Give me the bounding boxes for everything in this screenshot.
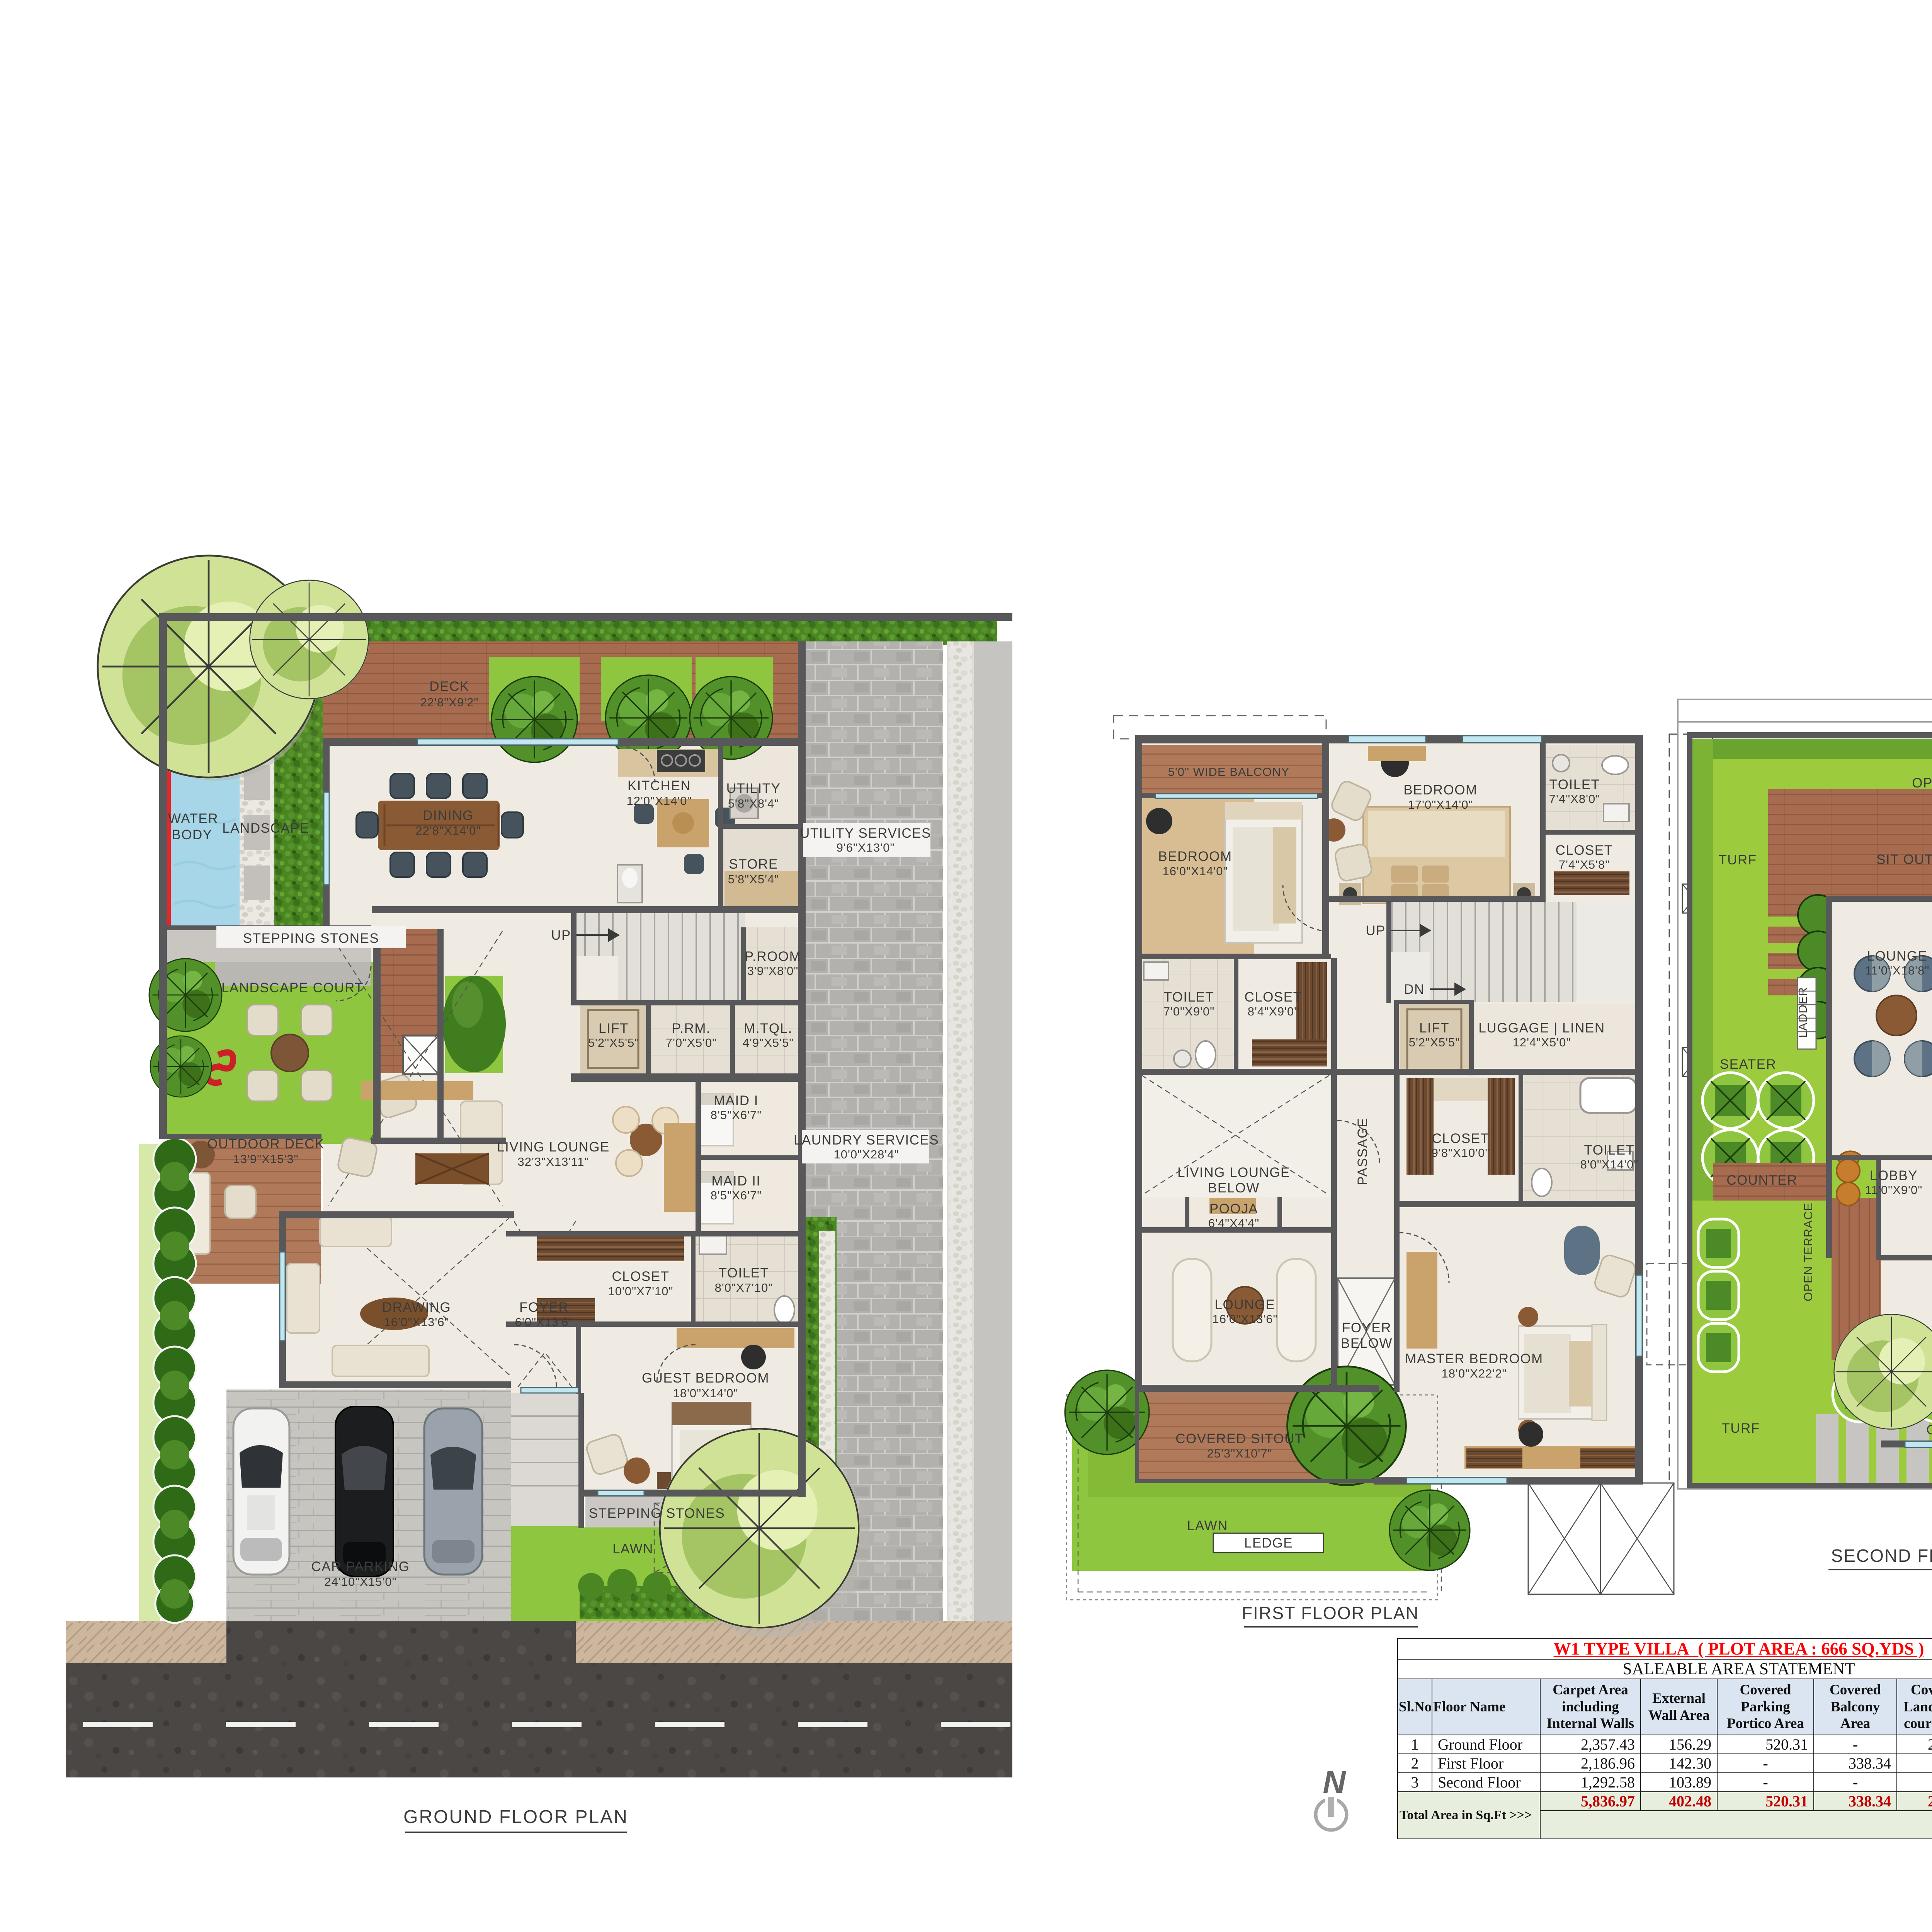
- svg-text:PASSAGE: PASSAGE: [1355, 1117, 1370, 1185]
- svg-text:P.ROOM: P.ROOM: [745, 949, 801, 964]
- svg-text:DINING: DINING: [423, 808, 474, 823]
- svg-text:LANDSCAPE: LANDSCAPE: [222, 821, 310, 836]
- svg-text:8'4"X9'0": 8'4"X9'0": [1248, 1005, 1299, 1018]
- svg-text:STORE: STORE: [729, 857, 778, 872]
- svg-text:CLOSET: CLOSET: [1555, 843, 1613, 858]
- svg-text:LAUNDRY SERVICES: LAUNDRY SERVICES: [794, 1133, 939, 1148]
- svg-text:CAR PARKING: CAR PARKING: [311, 1559, 410, 1574]
- svg-text:17'0"X14'0": 17'0"X14'0": [1408, 798, 1473, 811]
- svg-text:10'0"X28'4": 10'0"X28'4": [834, 1148, 899, 1161]
- svg-text:UTILITY: UTILITY: [726, 781, 781, 796]
- svg-text:MAID II: MAID II: [711, 1173, 760, 1189]
- svg-text:POOJA: POOJA: [1209, 1201, 1258, 1216]
- svg-text:UP: UP: [1366, 923, 1386, 938]
- svg-text:8'0"X14'0": 8'0"X14'0": [1580, 1158, 1639, 1171]
- svg-text:SEATER: SEATER: [1720, 1057, 1776, 1072]
- svg-text:TOILET: TOILET: [1549, 777, 1600, 792]
- svg-text:DRAWING: DRAWING: [382, 1300, 451, 1315]
- svg-text:LIFT: LIFT: [1419, 1020, 1449, 1036]
- svg-text:M.TQL.: M.TQL.: [744, 1021, 793, 1036]
- svg-text:LANDSCAPE COURT: LANDSCAPE COURT: [221, 980, 364, 995]
- svg-text:CLOSET: CLOSET: [1432, 1131, 1489, 1146]
- svg-text:9'6"X13'0": 9'6"X13'0": [837, 841, 895, 854]
- svg-text:LADDER: LADDER: [1796, 987, 1810, 1038]
- svg-text:16'0"X14'0": 16'0"X14'0": [1163, 864, 1228, 878]
- svg-text:CLOSET: CLOSET: [612, 1269, 669, 1284]
- svg-text:11'0"X9'0": 11'0"X9'0": [1865, 1183, 1922, 1197]
- svg-text:WATER: WATER: [168, 811, 218, 826]
- svg-text:BELOW: BELOW: [1208, 1180, 1260, 1196]
- svg-text:11'0"X18'8": 11'0"X18'8": [1865, 964, 1930, 977]
- svg-text:OUTDOOR DECK: OUTDOOR DECK: [207, 1136, 325, 1151]
- svg-text:LIVING LOUNGE: LIVING LOUNGE: [497, 1139, 610, 1155]
- svg-text:8'5"X6'7": 8'5"X6'7": [711, 1189, 762, 1202]
- svg-text:4'9"X5'5": 4'9"X5'5": [743, 1036, 794, 1049]
- svg-text:TOILET: TOILET: [719, 1265, 769, 1281]
- svg-text:GROUND FLOOR PLAN: GROUND FLOOR PLAN: [403, 1807, 628, 1827]
- svg-text:OPEN TERRACE: OPEN TERRACE: [1801, 1202, 1815, 1301]
- svg-text:5'0" WIDE BALCONY: 5'0" WIDE BALCONY: [1168, 765, 1290, 779]
- svg-text:BEDROOM: BEDROOM: [1158, 849, 1232, 864]
- svg-text:12'4"X5'0": 12'4"X5'0": [1513, 1036, 1571, 1049]
- svg-text:16'0"X13'6": 16'0"X13'6": [384, 1315, 449, 1329]
- svg-text:FOYER: FOYER: [519, 1300, 569, 1315]
- svg-text:DECK: DECK: [429, 679, 469, 694]
- svg-text:BEDROOM: BEDROOM: [1403, 782, 1477, 798]
- svg-text:LOUNGE: LOUNGE: [1867, 949, 1928, 964]
- svg-text:MASTER BEDROOM: MASTER BEDROOM: [1405, 1351, 1543, 1366]
- svg-text:CLOSET: CLOSET: [1244, 990, 1302, 1005]
- svg-text:OPEN TERRACE: OPEN TERRACE: [1926, 1422, 1932, 1437]
- svg-text:22'8"X14'0": 22'8"X14'0": [416, 824, 481, 837]
- svg-text:OPEN TERRACE: OPEN TERRACE: [1912, 776, 1932, 791]
- svg-text:5'2"X5'5": 5'2"X5'5": [1409, 1036, 1460, 1049]
- svg-text:3'9"X8'0": 3'9"X8'0": [747, 964, 799, 978]
- svg-text:5'2"X5'5": 5'2"X5'5": [588, 1036, 639, 1049]
- svg-text:5'8"X8'4": 5'8"X8'4": [728, 797, 779, 810]
- svg-text:LUGGAGE | LINEN: LUGGAGE | LINEN: [1478, 1020, 1605, 1036]
- svg-text:BODY: BODY: [172, 827, 212, 842]
- svg-text:COUNTER: COUNTER: [1726, 1173, 1798, 1188]
- svg-text:TOILET: TOILET: [1584, 1143, 1635, 1158]
- svg-text:UP: UP: [551, 928, 571, 943]
- svg-text:COVERED SITOUT: COVERED SITOUT: [1175, 1431, 1304, 1446]
- svg-text:10'0"X7'10": 10'0"X7'10": [608, 1284, 673, 1298]
- svg-text:22'8"X9'2": 22'8"X9'2": [420, 696, 479, 709]
- svg-text:13'9"X15'3": 13'9"X15'3": [233, 1152, 299, 1166]
- svg-text:LIVING LOUNGE: LIVING LOUNGE: [1177, 1165, 1290, 1180]
- svg-text:TOILET: TOILET: [1164, 990, 1214, 1005]
- svg-text:P.RM.: P.RM.: [672, 1021, 711, 1036]
- svg-text:24'10"X15'0": 24'10"X15'0": [324, 1575, 396, 1588]
- svg-text:STEPPING STONES: STEPPING STONES: [589, 1506, 725, 1521]
- svg-text:LOBBY: LOBBY: [1870, 1168, 1918, 1183]
- svg-text:8'0"X7'10": 8'0"X7'10": [715, 1281, 773, 1294]
- svg-text:32'3"X13'11": 32'3"X13'11": [518, 1155, 589, 1168]
- svg-text:LIFT: LIFT: [599, 1021, 629, 1036]
- svg-text:LEDGE: LEDGE: [1244, 1536, 1293, 1551]
- svg-text:FIRST FLOOR PLAN: FIRST FLOOR PLAN: [1242, 1603, 1419, 1623]
- svg-text:18'0"X22'2": 18'0"X22'2": [1442, 1367, 1507, 1380]
- svg-text:9'8"X10'0": 9'8"X10'0": [1432, 1146, 1490, 1160]
- svg-text:7'4"X8'0": 7'4"X8'0": [1549, 792, 1600, 806]
- svg-text:UTILITY SERVICES: UTILITY SERVICES: [800, 826, 931, 841]
- svg-text:18'0"X14'0": 18'0"X14'0": [673, 1386, 738, 1400]
- svg-text:5'8"X5'4": 5'8"X5'4": [728, 872, 779, 886]
- svg-text:FOYER: FOYER: [1342, 1320, 1391, 1335]
- svg-text:8'5"X6'7": 8'5"X6'7": [711, 1108, 762, 1122]
- svg-text:STEPPING STONES: STEPPING STONES: [243, 931, 379, 946]
- svg-text:25'3"X10'7": 25'3"X10'7": [1207, 1447, 1272, 1460]
- svg-text:16'0"X13'6": 16'0"X13'6": [1213, 1312, 1278, 1326]
- svg-text:DN: DN: [1404, 982, 1425, 997]
- svg-text:LOUNGE: LOUNGE: [1215, 1297, 1276, 1312]
- svg-text:6'0"X13'6": 6'0"X13'6": [515, 1315, 573, 1329]
- svg-text:12'0"X14'0": 12'0"X14'0": [627, 794, 692, 808]
- svg-text:TURF: TURF: [1721, 1421, 1760, 1436]
- svg-text:KITCHEN: KITCHEN: [628, 778, 691, 793]
- svg-text:SIT OUT: SIT OUT: [1876, 852, 1932, 867]
- svg-text:TURF: TURF: [1718, 852, 1757, 867]
- svg-text:7'0"X5'0": 7'0"X5'0": [666, 1036, 717, 1049]
- svg-text:7'0"X9'0": 7'0"X9'0": [1163, 1005, 1215, 1018]
- svg-text:LAWN: LAWN: [612, 1541, 653, 1556]
- svg-text:N: N: [1323, 1765, 1346, 1800]
- svg-text:6'4"X4'4": 6'4"X4'4": [1208, 1216, 1260, 1230]
- svg-text:GUEST BEDROOM: GUEST BEDROOM: [642, 1371, 769, 1386]
- svg-text:BELOW: BELOW: [1341, 1336, 1393, 1351]
- svg-text:7'4"X5'8": 7'4"X5'8": [1559, 858, 1610, 871]
- svg-text:SECOND FLOOR PLAN: SECOND FLOOR PLAN: [1831, 1546, 1932, 1566]
- svg-text:MAID I: MAID I: [714, 1093, 759, 1108]
- svg-text:LAWN: LAWN: [1187, 1518, 1228, 1533]
